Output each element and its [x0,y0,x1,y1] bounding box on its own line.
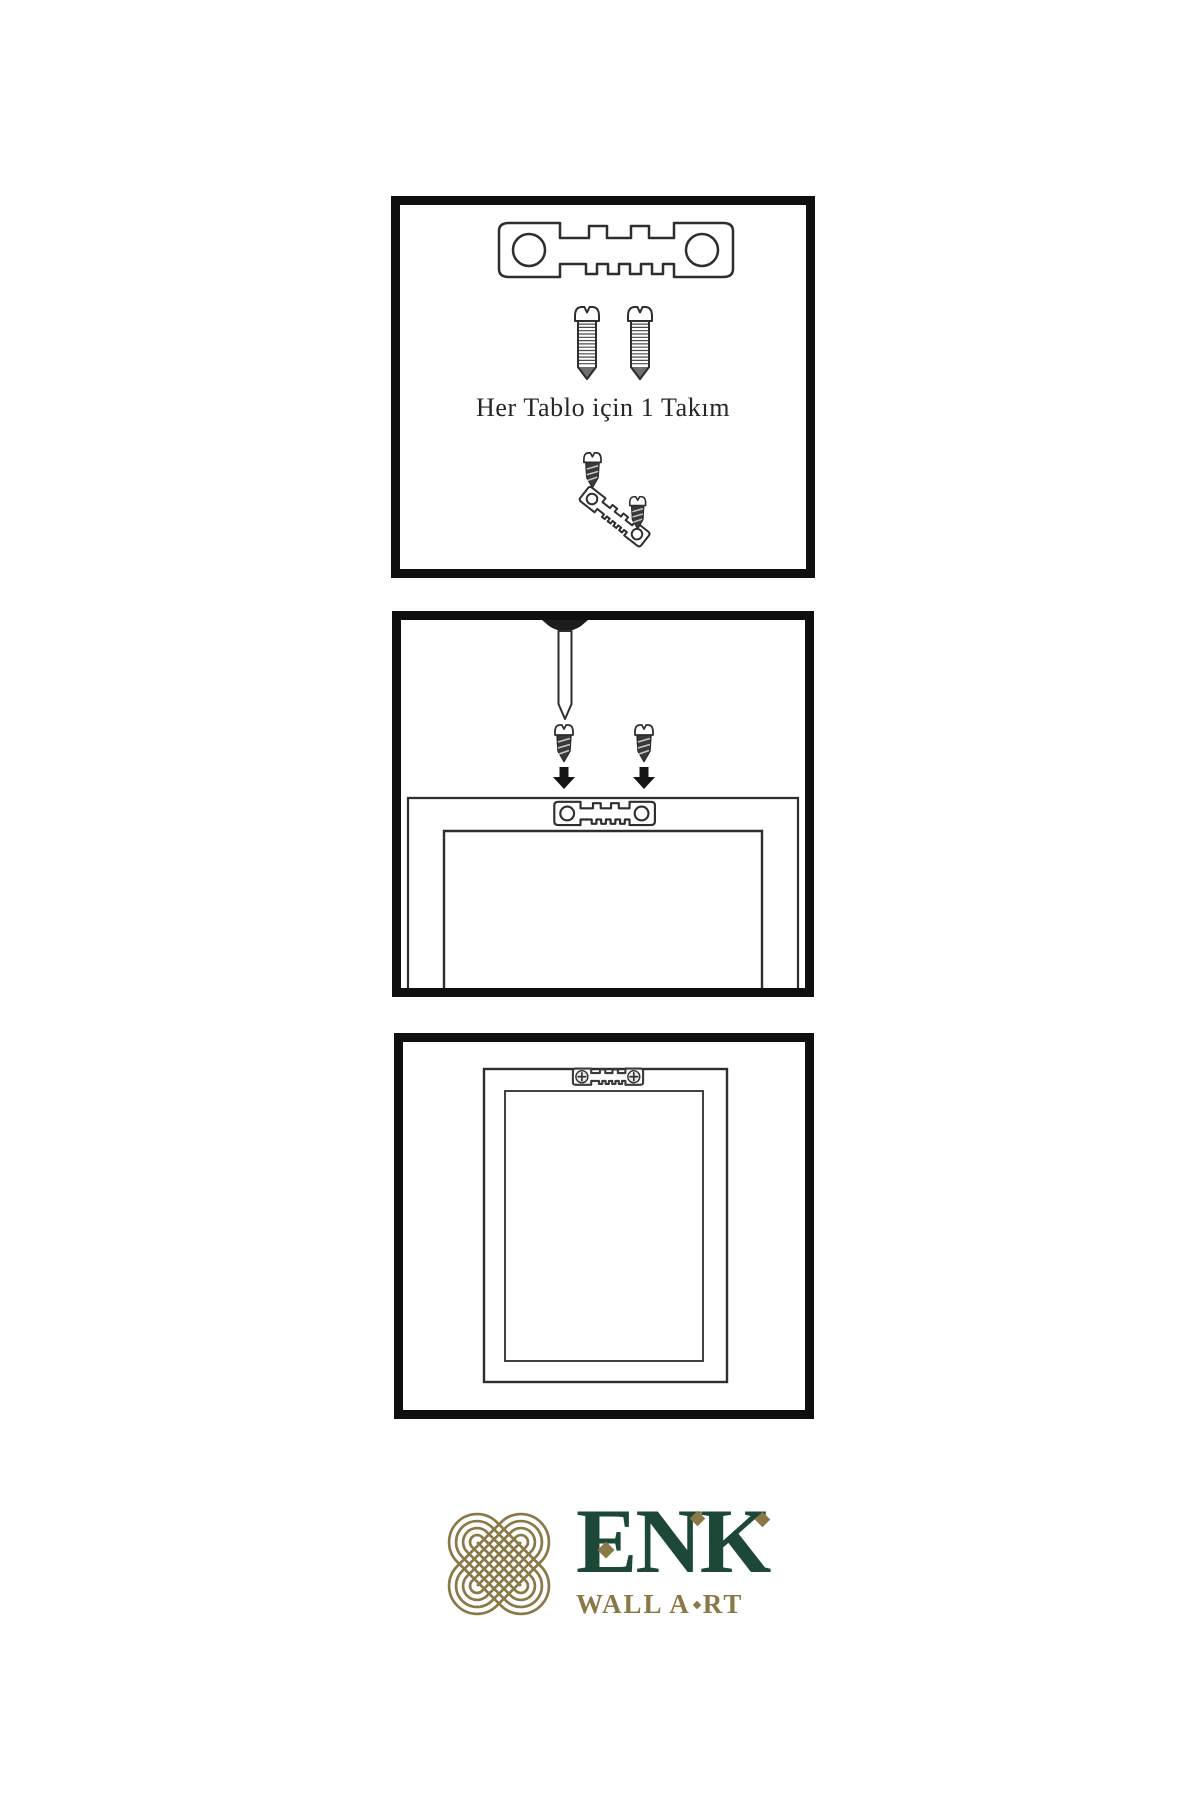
phillips-screw-head-icon [576,1071,588,1083]
arrow-down-icon [633,767,655,789]
screw-icon [575,307,599,379]
kit-caption: Her Tablo için 1 Takım [400,393,806,423]
panel-mounting-step [392,611,814,997]
screw-icon [584,453,601,488]
brand-logo: ENK WALL ART [438,1498,798,1648]
screw-icon [555,725,573,762]
tagline-part-1: WALL A [576,1589,691,1619]
mounting-illustration [401,620,805,988]
instruction-sheet: Her Tablo için 1 Takım [0,0,1200,1800]
frame-back-icon [408,798,798,988]
arrow-down-icon [553,767,575,789]
panel-hanging-step [394,1033,814,1419]
nail-icon [542,620,588,719]
brand-text: ENK WALL ART [576,1498,806,1638]
screw-icon [628,307,652,379]
gold-diamond-icon [693,1601,701,1609]
picture-frame-icon [484,1069,727,1382]
hanging-illustration [403,1042,805,1410]
sawtooth-hanger-icon [499,223,733,277]
hardware-kit-illustration [400,205,806,569]
screw-into-hanger-icon [579,453,651,548]
tagline-part-2: RT [703,1589,744,1619]
interlaced-knot-icon [438,1498,560,1630]
panel-hardware-kit: Her Tablo için 1 Takım [391,196,815,578]
phillips-screw-head-icon [628,1071,640,1083]
sawtooth-hanger-icon [554,802,655,825]
screw-icon [635,725,653,762]
brand-tagline: WALL ART [576,1589,743,1619]
